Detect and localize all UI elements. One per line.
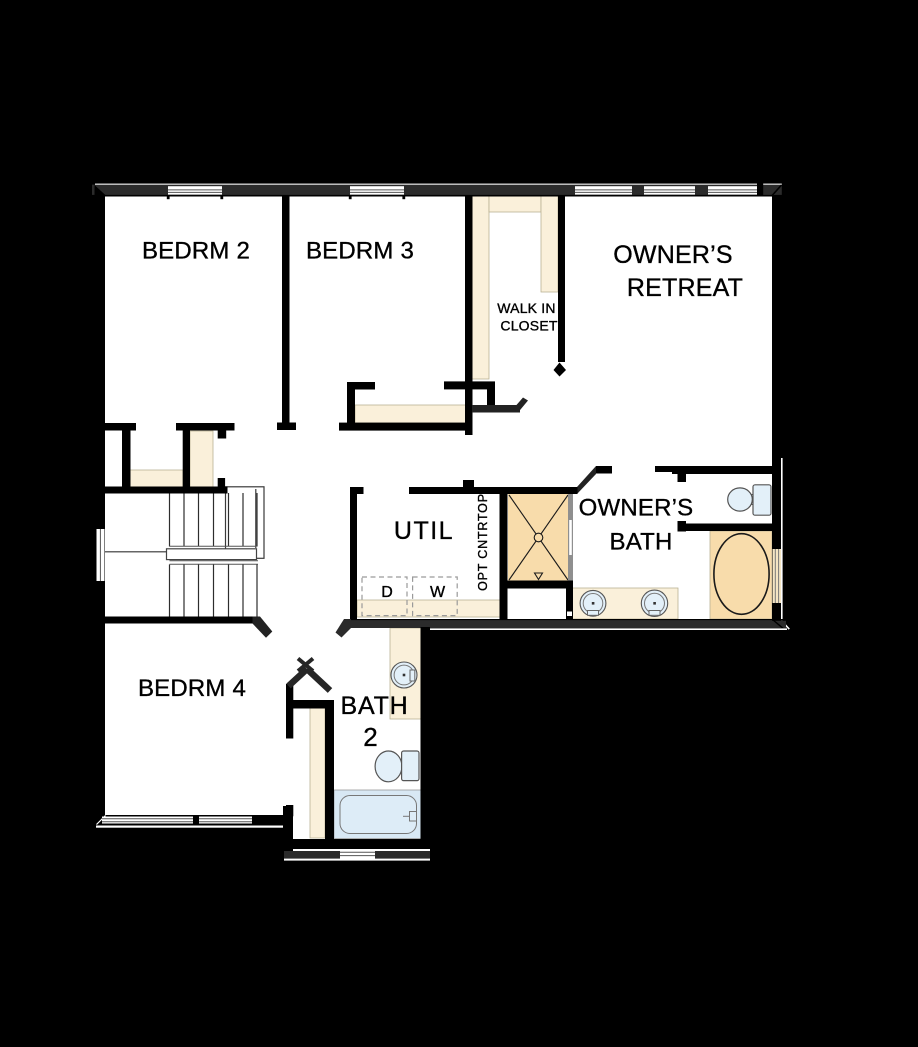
svg-text:BATH: BATH (340, 692, 408, 720)
svg-text:UTIL: UTIL (394, 517, 454, 545)
svg-text:W: W (430, 584, 446, 601)
svg-text:OWNER’S: OWNER’S (613, 241, 732, 269)
svg-text:RETREAT: RETREAT (627, 274, 743, 302)
svg-text:CLOSET: CLOSET (500, 318, 557, 334)
svg-text:D: D (381, 584, 393, 601)
svg-text:BATH: BATH (609, 529, 672, 556)
svg-text:OWNER’S: OWNER’S (579, 495, 694, 522)
svg-text:BEDRM 4: BEDRM 4 (138, 675, 246, 702)
svg-text:BEDRM 2: BEDRM 2 (142, 238, 250, 265)
svg-text:WALK IN: WALK IN (497, 300, 555, 316)
svg-text:2: 2 (363, 722, 377, 752)
svg-text:OPT CNTRTOP: OPT CNTRTOP (476, 493, 490, 591)
svg-text:BEDRM 3: BEDRM 3 (306, 238, 414, 265)
